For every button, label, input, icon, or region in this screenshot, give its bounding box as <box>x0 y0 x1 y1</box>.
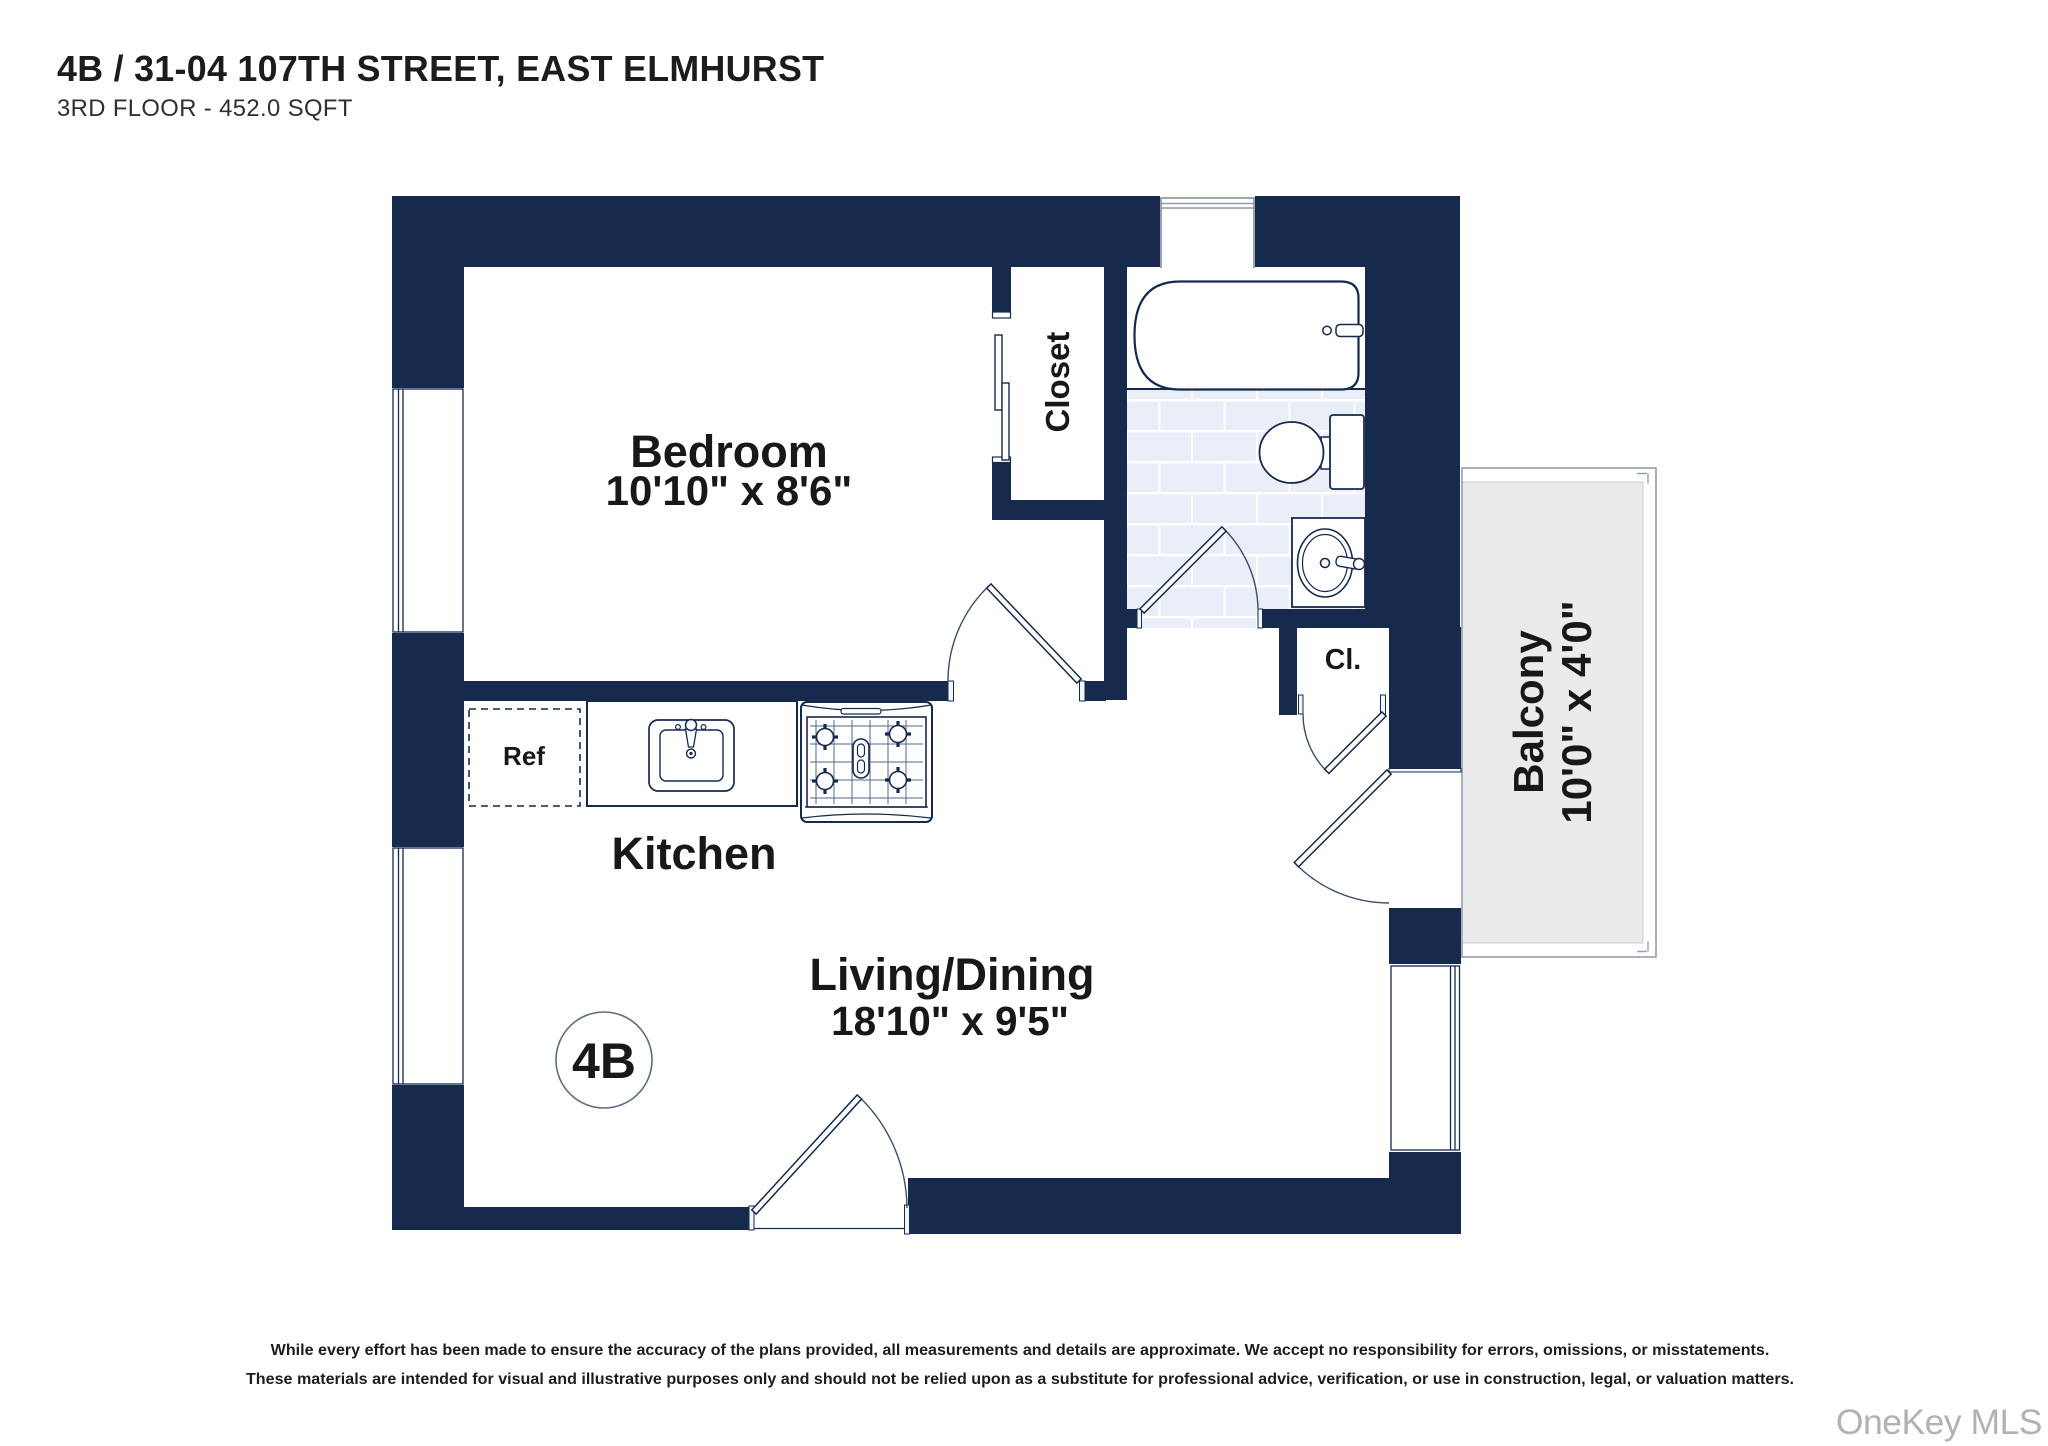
svg-text:Closet: Closet <box>1039 332 1076 433</box>
svg-text:4B: 4B <box>572 1033 636 1089</box>
svg-text:18'10" x 9'5": 18'10" x 9'5" <box>831 998 1069 1044</box>
svg-text:Balcony: Balcony <box>1505 630 1552 794</box>
svg-text:Kitchen: Kitchen <box>611 828 776 879</box>
svg-text:10'0" x 4'0": 10'0" x 4'0" <box>1553 600 1600 823</box>
svg-text:Ref: Ref <box>503 741 545 771</box>
svg-text:10'10" x 8'6": 10'10" x 8'6" <box>606 467 853 514</box>
svg-text:Living/Dining: Living/Dining <box>810 949 1095 1000</box>
svg-text:Cl.: Cl. <box>1325 644 1361 676</box>
